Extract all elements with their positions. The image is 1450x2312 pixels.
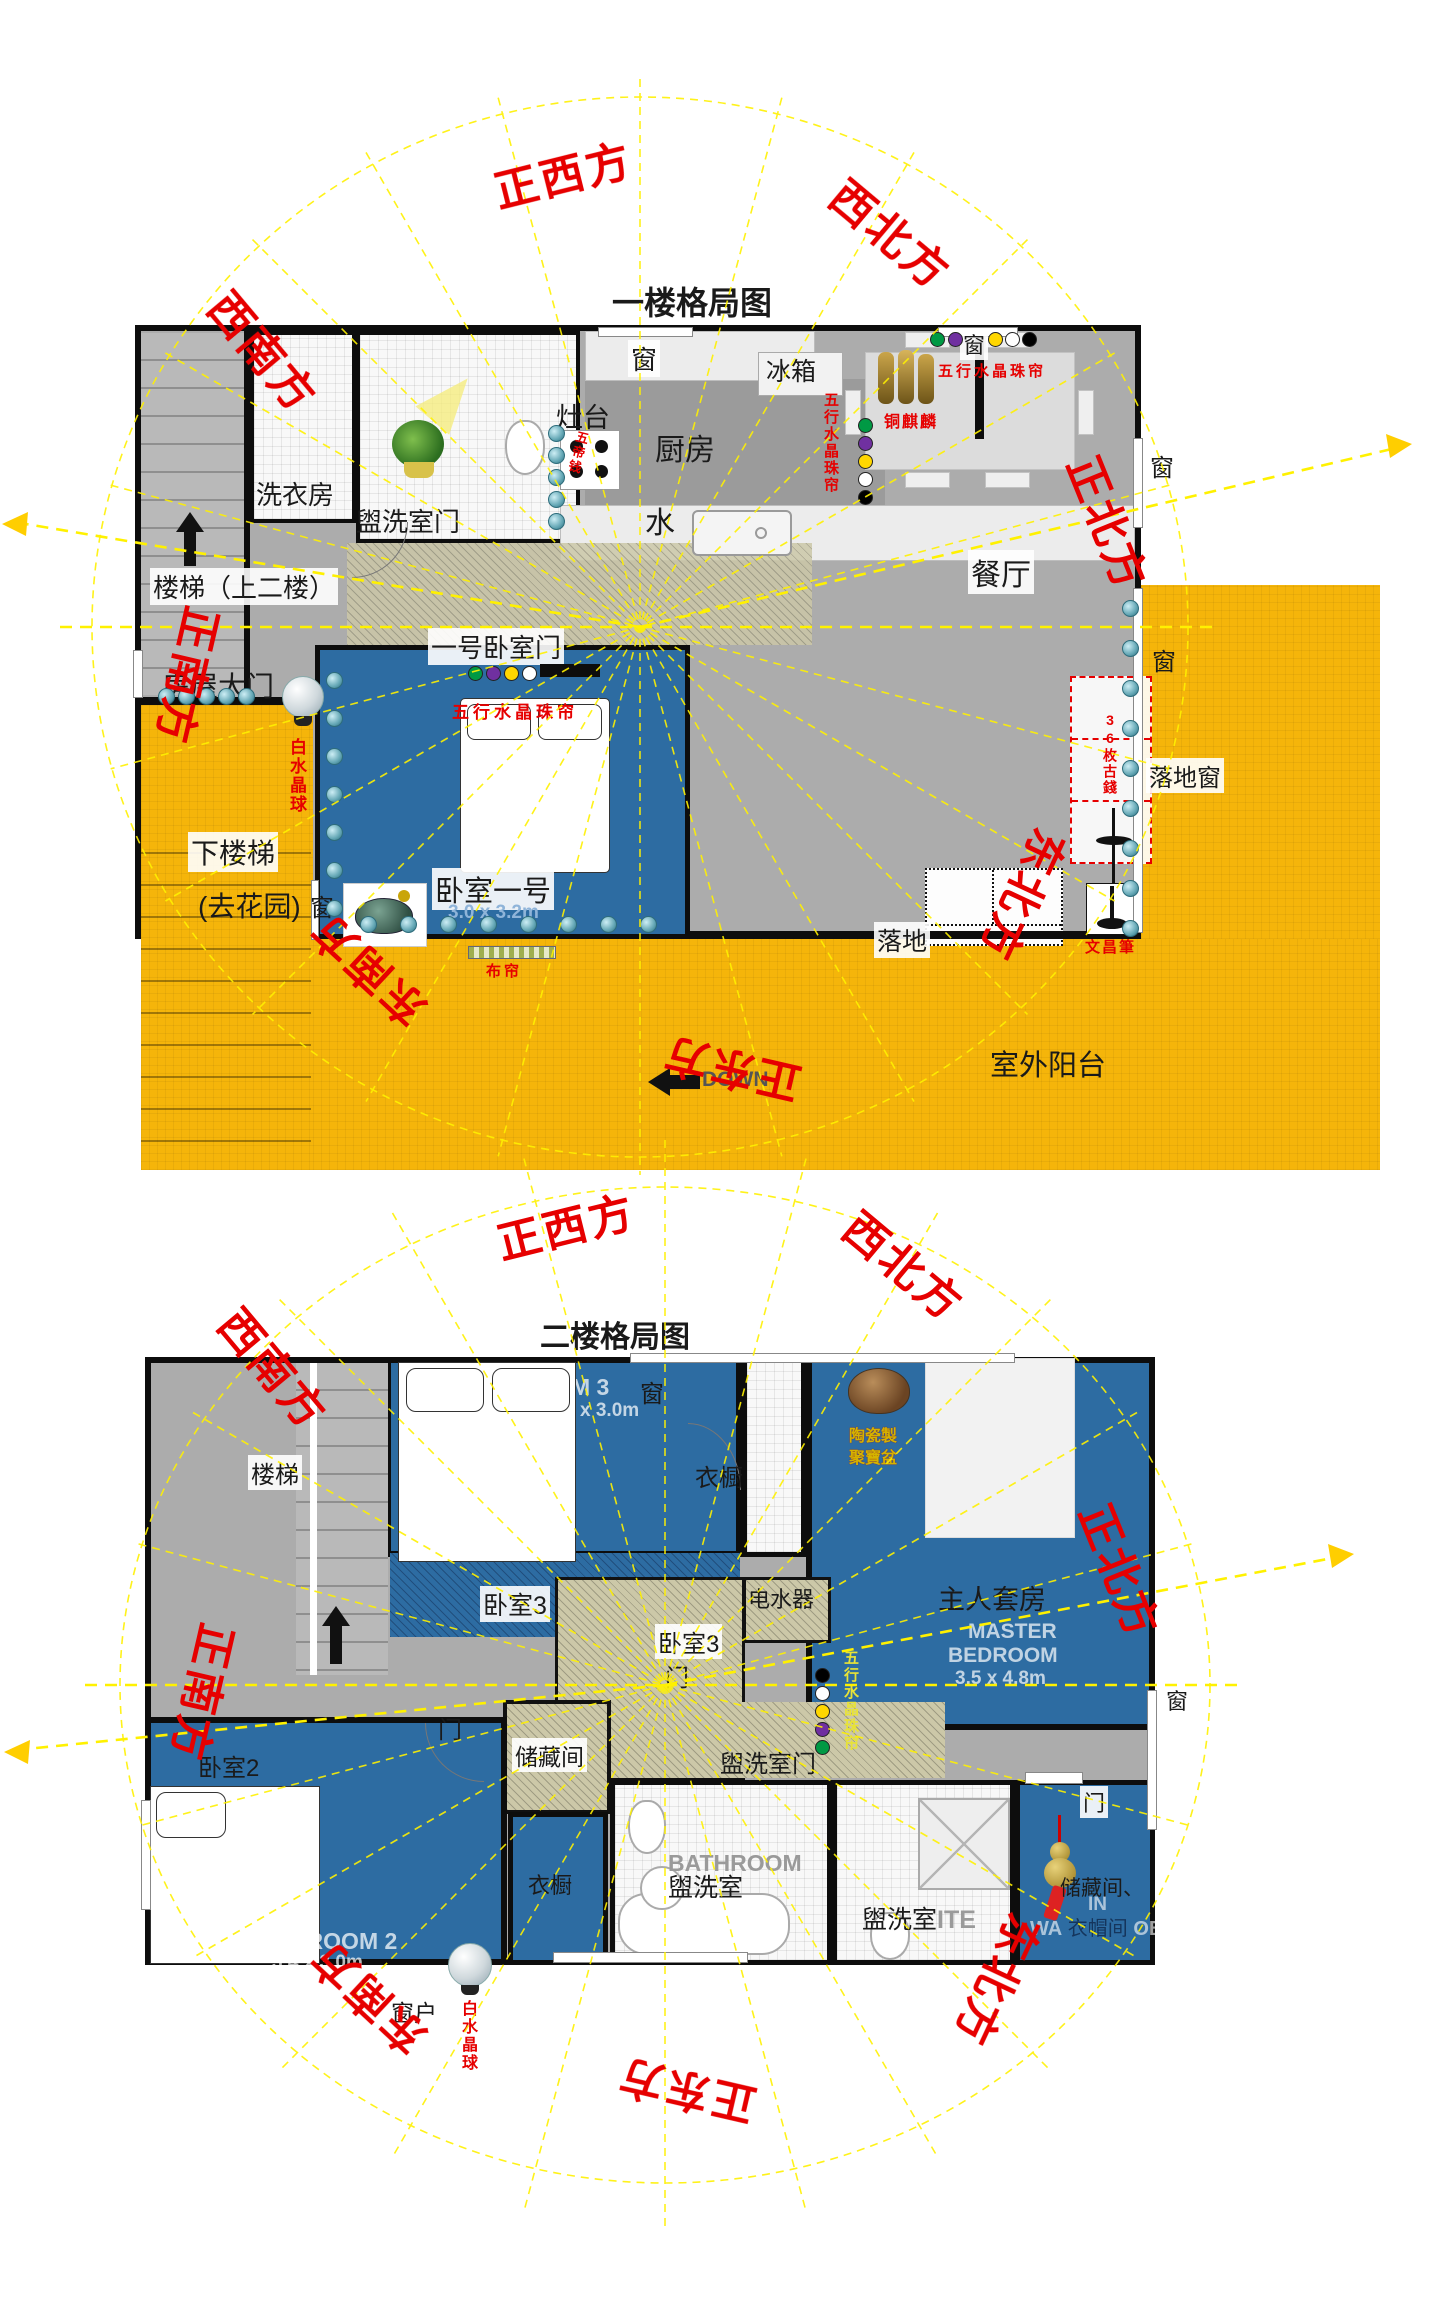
f2-pillow (492, 1368, 570, 1412)
f2-ensuite-frag: ITE (937, 1906, 976, 1934)
f1-chair (985, 472, 1030, 488)
f1-dragon-turtle-coin (398, 890, 410, 902)
f1-down-stairs-label: 下楼梯 (188, 832, 278, 872)
bead-white (858, 472, 873, 487)
f1-window-right-label: 窗 (1150, 448, 1174, 483)
f2-closet-label: 衣帽间 (1068, 1918, 1128, 1940)
f2-wardrobe-room (742, 1357, 806, 1557)
bead-black (815, 1668, 830, 1683)
f1-window-label: 窗 (628, 340, 660, 377)
coin-icon (548, 469, 565, 486)
f1-main-door-gap (133, 650, 143, 698)
f1-sink-drain (755, 527, 767, 539)
bead-white (1005, 332, 1020, 347)
f2-stairs-label: 楼梯 (248, 1455, 302, 1490)
bead-green (858, 418, 873, 433)
f2-pillow (406, 1368, 484, 1412)
f2-master-bed (925, 1358, 1075, 1538)
f1-wall-laundry (244, 331, 250, 701)
coin-icon (640, 916, 657, 933)
f2-bedroom3-dims: x 3.0m (580, 1400, 639, 1422)
f2-up-arrow-icon (322, 1606, 350, 1626)
f2-shower (918, 1798, 1010, 1890)
f1-french-window-label: 落地窗 (1146, 758, 1224, 793)
f2-washroom-label: 盥洗室 (668, 1868, 743, 1904)
f2-storage-label: 储藏间 (512, 1738, 587, 1772)
f1-kitchen-label: 厨房 (655, 425, 715, 469)
coin-icon (1122, 680, 1139, 697)
coin-icon (238, 688, 255, 705)
f1-window-right2-label: 窗 (1152, 642, 1176, 677)
feng-shui-floorplan: 一楼格局图 窗 冰箱 灶台 厨房 水 餐厅 洗衣房 盥洗室门 楼梯（上二楼） 房… (0, 0, 1450, 2312)
f1-to-garden-label: (去花园) (198, 885, 301, 925)
f1-fridge-label: 冰箱 (766, 352, 816, 388)
bead-white (522, 666, 537, 681)
coin-icon (600, 916, 617, 933)
f1-dir-northwest: 西北方 (818, 162, 967, 302)
f1-balcony-label: 室外阳台 (990, 1042, 1106, 1084)
f1-dir-west: 正西方 (486, 124, 638, 220)
coin-icon (480, 916, 497, 933)
coin-icon (1122, 880, 1139, 897)
f1-plant-pot (404, 462, 434, 478)
f1-white-crystal-label: 白水晶球 (284, 738, 309, 814)
coin-icon (218, 688, 235, 705)
bead-black (1022, 332, 1037, 347)
f1-qilin-figure (898, 350, 914, 404)
bead-black (858, 490, 873, 505)
coin-icon (1122, 600, 1139, 617)
f2-window-right (1147, 1690, 1157, 1830)
f1-balcony-bottom (313, 939, 1380, 1170)
bead-purple (858, 436, 873, 451)
f1-stove-burner (595, 465, 608, 478)
f1-dining-label: 餐厅 (968, 550, 1034, 594)
coin-icon (440, 916, 457, 933)
f2-window-right-label: 窗 (1166, 1684, 1188, 1716)
f2-walkin-obe: OBE (1133, 1918, 1176, 1940)
bead-white (815, 1686, 830, 1701)
f1-up-arrow-icon (176, 512, 204, 532)
f1-stairs-up-label: 楼梯（上二楼） (150, 568, 338, 605)
f1-water-label: 水 (645, 498, 675, 542)
f2-window-left (141, 1800, 151, 1910)
bead-purple (486, 666, 501, 681)
f2-gourd-string (1058, 1815, 1061, 1845)
f1-bead-curtain-label: 五行水晶珠帘 (452, 698, 578, 723)
f2-crystal-ball (448, 1943, 492, 1987)
coin-icon (1122, 800, 1139, 817)
f1-chair (905, 472, 950, 488)
bead-green (468, 666, 483, 681)
f1-bedroom1-door-label: 一号卧室门 (428, 628, 564, 665)
coin-icon (326, 824, 343, 841)
f2-bead-curtain-label: 五行水晶珠帘 (840, 1650, 861, 1752)
f2-ensuite-cn: 盥洗室 (862, 1906, 937, 1934)
coin-icon (326, 710, 343, 727)
f1-qilin-figure (918, 354, 934, 404)
coin-icon (326, 786, 343, 803)
f2-pillow (156, 1792, 226, 1838)
f1-curtain-label: 布帘 (486, 960, 522, 981)
coin-icon (326, 672, 343, 689)
f1-sink (692, 510, 792, 556)
bead-green (815, 1740, 830, 1755)
f1-coins36-label: 36枚古錢 (1100, 712, 1120, 796)
f2-master-label: 主人套房 (938, 1578, 1046, 1617)
f1-wenchang-pole (1112, 808, 1115, 886)
f1-toilet (505, 420, 545, 475)
f2-white-crystal-label: 白水晶球 (455, 2000, 479, 2072)
coin-icon (326, 862, 343, 879)
f2-window-top-label: 窗 (640, 1374, 664, 1409)
f2-up-arrow-stem (330, 1624, 342, 1664)
f2-master-dims: 3.5 x 4.8m (955, 1668, 1046, 1690)
coin-icon (1122, 920, 1139, 937)
f2-master-en2: BEDROOM (948, 1644, 1058, 1668)
f1-qilin-figure (878, 352, 894, 404)
f1-up-arrow-stem (184, 530, 196, 566)
f1-qilin-label: 铜麒麟 (884, 408, 938, 432)
bead-purple (815, 1722, 830, 1737)
f1-corridor-hatch (347, 543, 812, 645)
f1-bedroom1-door-bar (540, 664, 600, 677)
f1-window-topright-label: 窗 (960, 328, 988, 360)
f1-window-top (598, 327, 693, 337)
f2-bedroom2-door-label: 门 (438, 1710, 462, 1745)
f1-crystal-ball (282, 676, 324, 718)
f2-closet2-label: 衣橱 (528, 1868, 572, 1900)
f2-bedroom3-label2: 卧室3 (655, 1624, 722, 1659)
coin-icon (326, 748, 343, 765)
f1-washroom-door-label: 盥洗室门 (356, 502, 460, 539)
f1-bead-curtain-label2: 五行水晶珠帘 (938, 360, 1046, 381)
f2-walkin-door-gap (1025, 1772, 1083, 1784)
coin-icon (1122, 720, 1139, 737)
bead-yellow (858, 454, 873, 469)
f2-wardrobe-label: 衣橱 (695, 1458, 743, 1493)
coin-icon (1122, 840, 1139, 857)
f2-water-heater-label: 电水器 (748, 1582, 814, 1614)
coin-icon (1122, 640, 1139, 657)
f2-toilet (628, 1800, 666, 1854)
f1-crystal-base (294, 716, 312, 726)
f2-window-bottom (553, 1952, 748, 1963)
bead-yellow (988, 332, 1003, 347)
f1-title: 一楼格局图 (612, 278, 772, 324)
bead-green (930, 332, 945, 347)
f1-stove-burner (595, 440, 608, 453)
bead-purple (948, 332, 963, 347)
f2-ceramic-label2: 聚寶盆 (849, 1444, 897, 1468)
coin-icon (548, 491, 565, 508)
f1-garden-stairs (141, 822, 311, 1170)
coin-icon (520, 916, 537, 933)
f1-wenchang-label: 文昌筆 (1085, 936, 1136, 957)
bead-yellow (815, 1704, 830, 1719)
coin-icon (548, 447, 565, 464)
f2-ensuite-label: 盥洗室ITE (862, 1900, 976, 1936)
f2-ceramic-bowl (848, 1368, 910, 1414)
f2-dir-east: 正东方 (610, 2047, 762, 2141)
f2-washroom-door-label: 盥洗室门 (720, 1744, 816, 1779)
f2-door-label: 门 (665, 1658, 689, 1693)
f2-dir-west: 正西方 (489, 1176, 641, 1272)
coin-icon (548, 425, 565, 442)
f2-dir-northwest: 西北方 (831, 1194, 980, 1334)
coin-icon (548, 513, 565, 530)
f1-laundry-label: 洗衣房 (256, 475, 334, 512)
f2-walkin-door-label: 门 (1080, 1786, 1108, 1818)
coin-icon (1122, 760, 1139, 777)
coin-icon (400, 916, 417, 933)
f2-crystal-base (461, 1985, 479, 1995)
f1-bead-curtain-label3: 五行水晶珠帘 (820, 392, 841, 494)
f2-title: 二楼格局图 (540, 1312, 690, 1356)
f1-chair (1078, 390, 1094, 435)
f1-curtain-strip (468, 946, 556, 959)
coin-icon (560, 916, 577, 933)
f2-bedroom3-label: 卧室3 (480, 1586, 550, 1622)
bead-yellow (504, 666, 519, 681)
f2-ceramic-label1: 陶瓷製 (849, 1422, 897, 1446)
f2-master-en1: MASTER (968, 1620, 1057, 1644)
f1-plant (392, 420, 444, 468)
f1-luodi-label: 落地 (874, 922, 930, 958)
